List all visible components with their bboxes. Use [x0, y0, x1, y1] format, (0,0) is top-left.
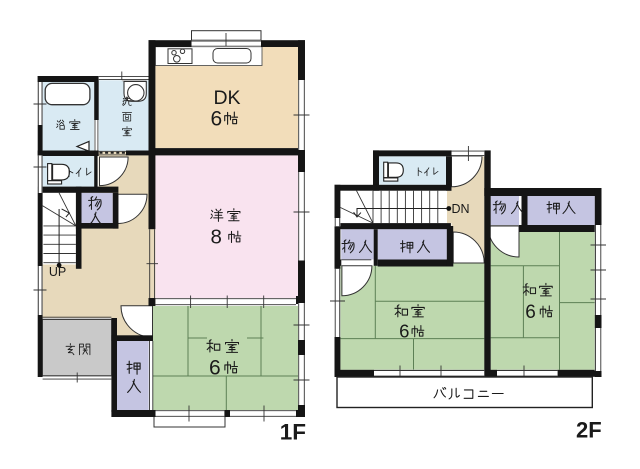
svg-text:2F: 2F	[576, 418, 602, 443]
svg-text:6: 6	[209, 357, 221, 380]
svg-text:6: 6	[210, 108, 222, 131]
svg-text:DK: DK	[213, 87, 240, 109]
svg-text:6: 6	[525, 302, 536, 323]
svg-text:DN: DN	[452, 202, 470, 216]
svg-text:1F: 1F	[280, 420, 306, 445]
svg-text:8: 8	[210, 226, 221, 249]
svg-text:6: 6	[399, 320, 409, 341]
svg-text:UP: UP	[49, 265, 66, 279]
